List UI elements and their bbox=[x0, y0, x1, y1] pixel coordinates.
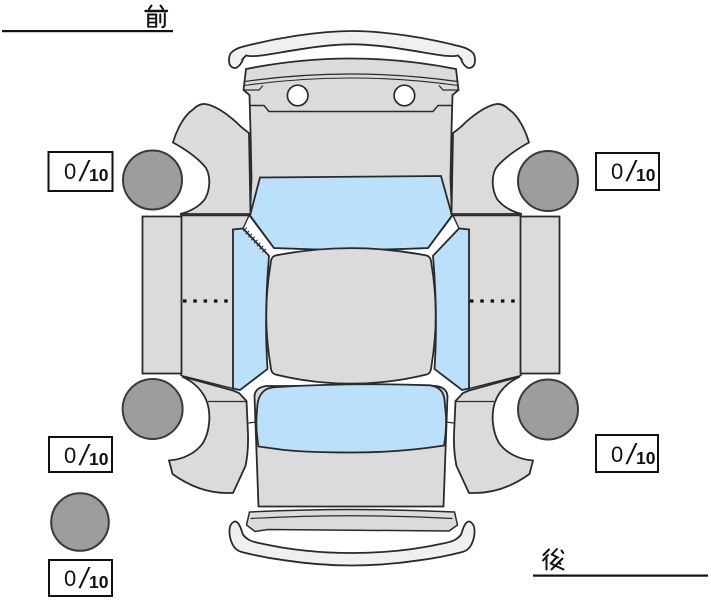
svg-text:0: 0 bbox=[611, 159, 623, 184]
svg-text:0: 0 bbox=[64, 566, 76, 591]
svg-text:10: 10 bbox=[89, 449, 109, 469]
svg-text:0: 0 bbox=[611, 442, 623, 467]
svg-text:0: 0 bbox=[64, 159, 76, 184]
svg-text:10: 10 bbox=[89, 165, 109, 185]
svg-text:0: 0 bbox=[64, 443, 76, 468]
svg-text:10: 10 bbox=[636, 448, 656, 468]
svg-text:10: 10 bbox=[89, 572, 109, 592]
svg-text:10: 10 bbox=[636, 165, 656, 185]
